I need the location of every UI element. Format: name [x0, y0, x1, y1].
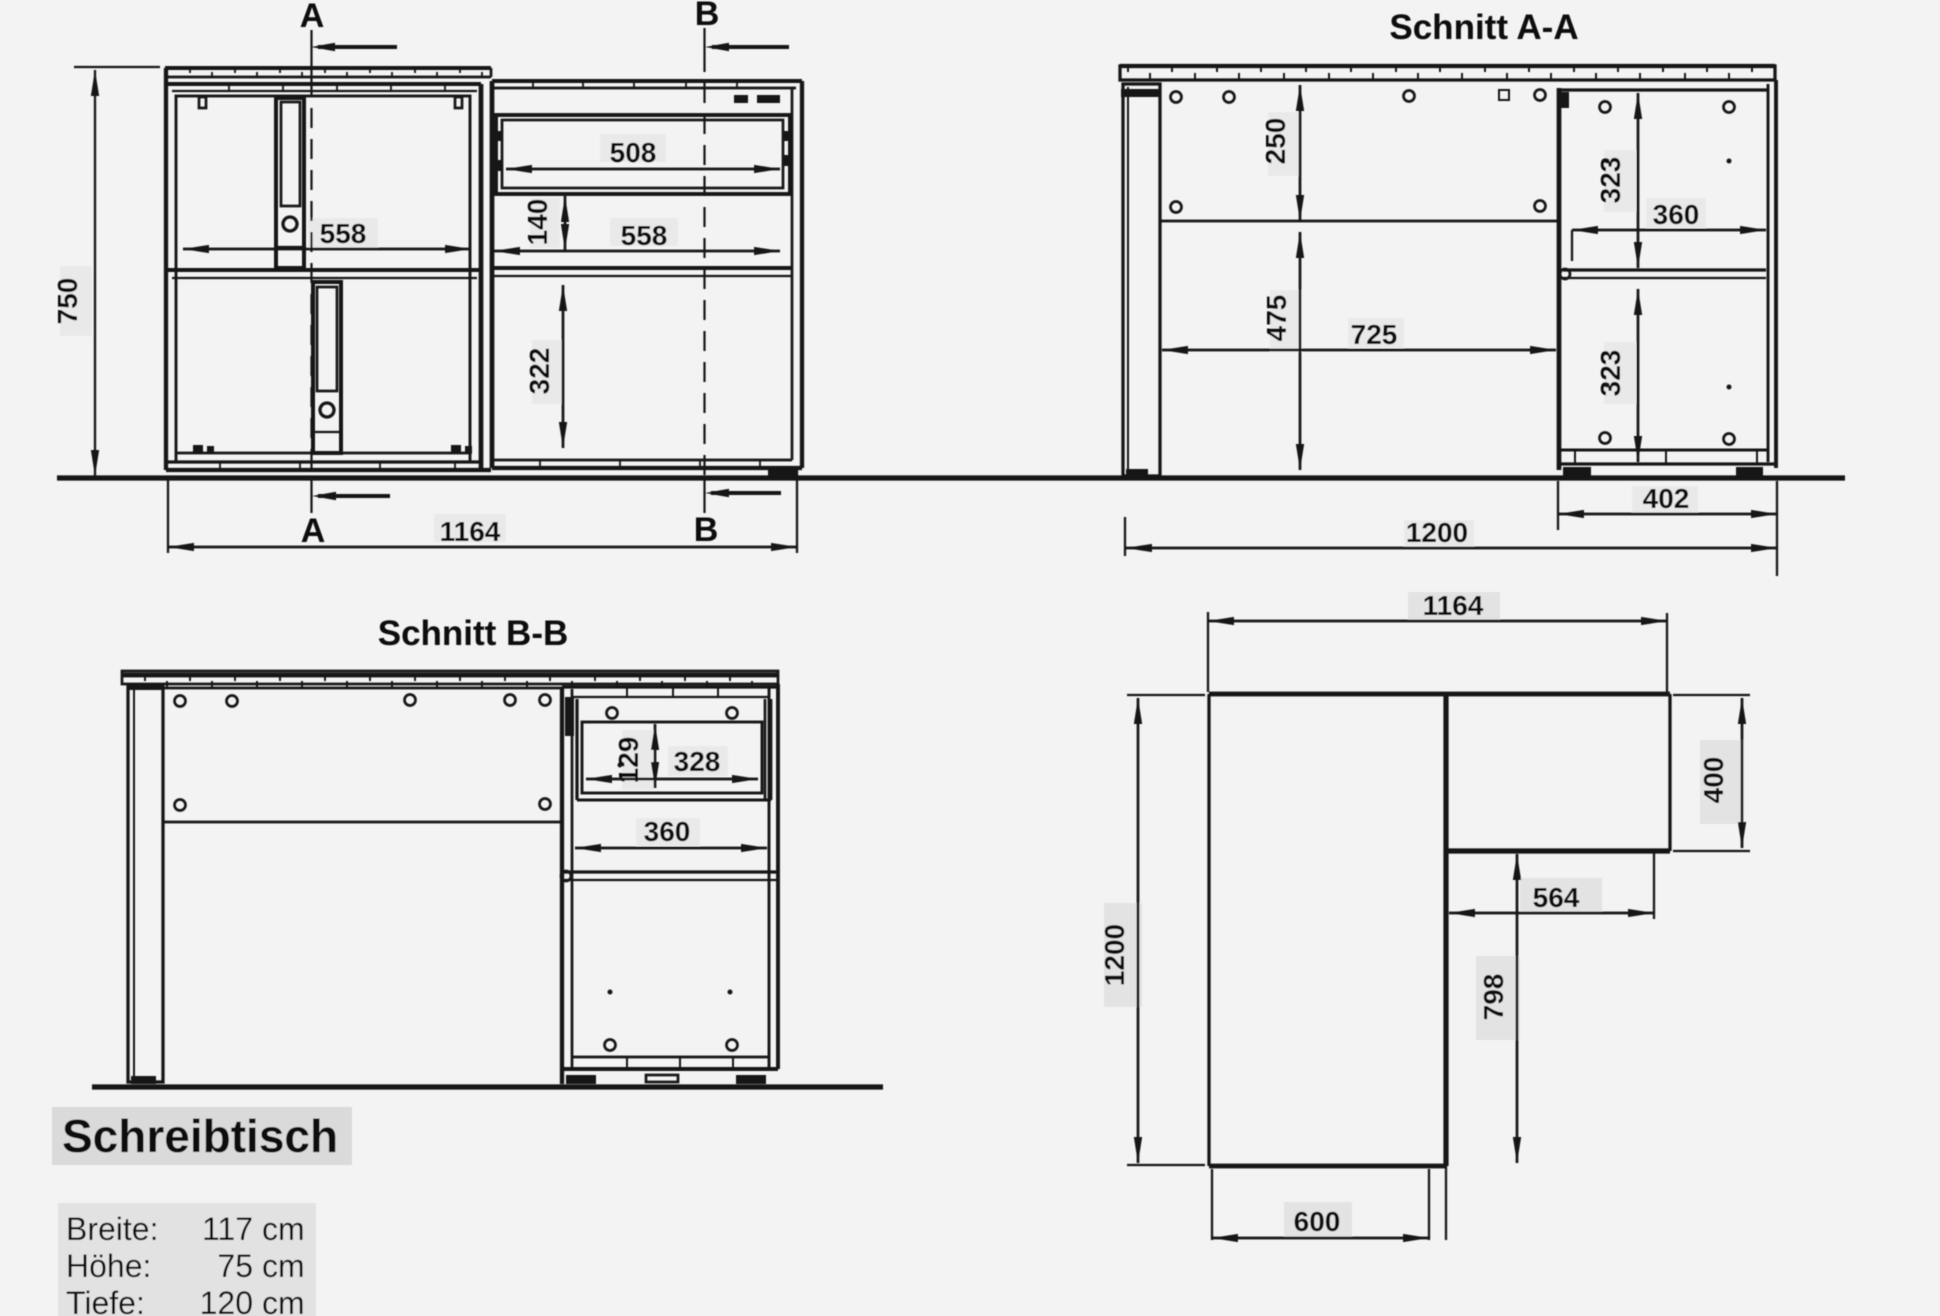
svg-text:A: A [300, 0, 325, 35]
svg-text:cm: cm [262, 1211, 305, 1247]
svg-text:Tiefe:: Tiefe: [66, 1285, 145, 1316]
svg-text:360: 360 [644, 816, 691, 847]
svg-text:400: 400 [1698, 757, 1729, 804]
svg-text:558: 558 [320, 218, 367, 249]
svg-text:328: 328 [674, 746, 721, 777]
svg-text:750: 750 [52, 278, 83, 325]
svg-text:323: 323 [1595, 157, 1626, 204]
svg-text:Schreibtisch: Schreibtisch [62, 1110, 338, 1162]
svg-text:cm: cm [262, 1248, 305, 1284]
svg-text:75: 75 [217, 1248, 253, 1284]
svg-text:508: 508 [610, 137, 657, 168]
svg-text:140: 140 [522, 199, 553, 246]
svg-text:129: 129 [613, 737, 644, 784]
svg-text:475: 475 [1261, 295, 1292, 342]
svg-text:B: B [695, 0, 720, 33]
svg-text:798: 798 [1478, 974, 1509, 1021]
svg-text:Schnitt B-B: Schnitt B-B [378, 614, 569, 653]
svg-text:360: 360 [1653, 199, 1700, 230]
svg-text:120: 120 [200, 1285, 253, 1316]
svg-text:1164: 1164 [1423, 590, 1484, 621]
svg-text:322: 322 [524, 348, 555, 395]
svg-text:1164: 1164 [440, 516, 501, 547]
svg-text:1200: 1200 [1099, 924, 1130, 986]
svg-text:A: A [301, 512, 326, 550]
svg-text:1200: 1200 [1406, 517, 1468, 548]
svg-text:564: 564 [1533, 882, 1580, 913]
svg-text:600: 600 [1294, 1206, 1341, 1237]
svg-text:Höhe:: Höhe: [66, 1248, 151, 1284]
svg-text:cm: cm [262, 1285, 305, 1316]
svg-text:117: 117 [202, 1211, 253, 1247]
svg-text:250: 250 [1260, 118, 1291, 165]
svg-text:402: 402 [1643, 483, 1690, 514]
svg-text:B: B [694, 511, 719, 549]
svg-text:558: 558 [621, 220, 668, 251]
svg-text:Breite:: Breite: [66, 1211, 158, 1247]
svg-text:Schnitt A-A: Schnitt A-A [1389, 8, 1578, 47]
svg-text:725: 725 [1351, 319, 1398, 350]
svg-text:323: 323 [1595, 350, 1626, 397]
